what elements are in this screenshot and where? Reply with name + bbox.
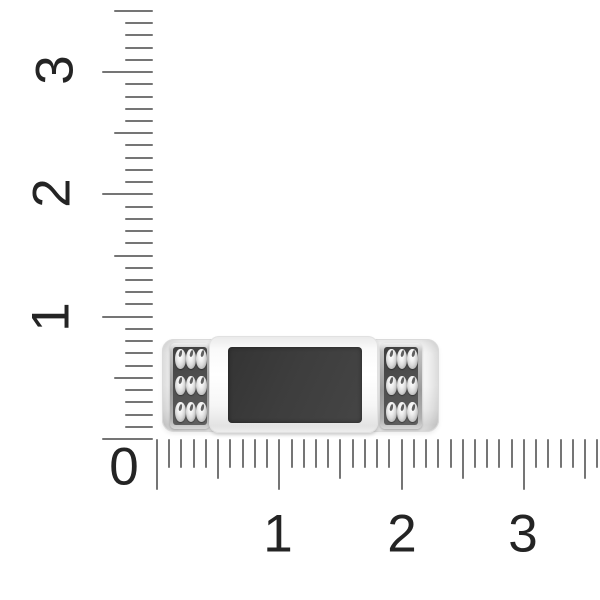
bead-highlight [390, 403, 395, 411]
ring-bead [196, 349, 207, 369]
bead-highlight [200, 350, 205, 358]
ring-bead [175, 402, 186, 422]
bead-highlight [400, 377, 405, 385]
bead-highlight [390, 377, 395, 385]
ring-bead [407, 376, 418, 396]
bead-highlight [400, 350, 405, 358]
ring-bead [196, 402, 207, 422]
bead-highlight [179, 377, 184, 385]
bead-highlight [189, 377, 194, 385]
bead-highlight [400, 403, 405, 411]
ring-bead [186, 402, 197, 422]
ring-bead [196, 376, 207, 396]
ring-bead [386, 349, 397, 369]
ring-stone-frame [209, 336, 378, 433]
bead-highlight [179, 350, 184, 358]
ring-product-image [0, 0, 600, 600]
bead-highlight [179, 403, 184, 411]
ring-bead [397, 402, 408, 422]
ring-bead [386, 376, 397, 396]
bead-highlight [189, 403, 194, 411]
ring-bead [186, 349, 197, 369]
bead-highlight [390, 350, 395, 358]
bead-highlight [411, 350, 416, 358]
ring-bead [397, 349, 408, 369]
ring-bead [175, 376, 186, 396]
ring-bead [407, 349, 418, 369]
ring-bead [407, 402, 418, 422]
bead-highlight [189, 350, 194, 358]
bead-highlight [200, 403, 205, 411]
ring-onyx-stone [228, 347, 362, 423]
ring-bead [175, 349, 186, 369]
ring-bead [386, 402, 397, 422]
bead-highlight [200, 377, 205, 385]
bead-highlight [411, 377, 416, 385]
scene: 3 2 1 0 1 2 3 [0, 0, 600, 600]
bead-highlight [411, 403, 416, 411]
